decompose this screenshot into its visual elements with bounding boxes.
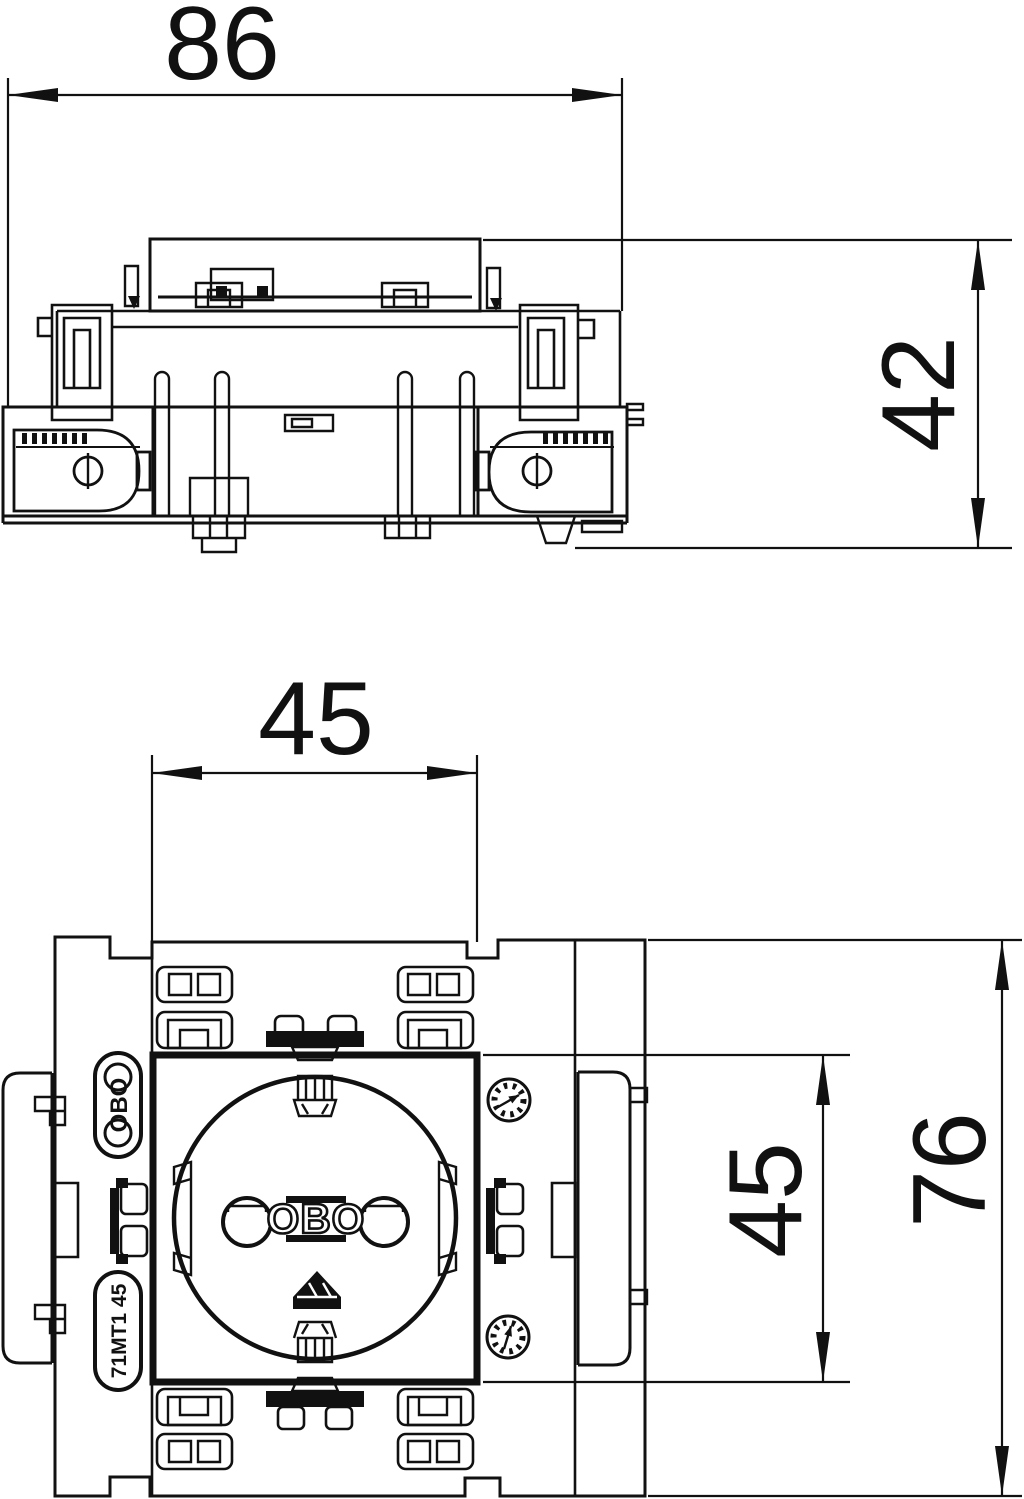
bottom-center-clamp: [266, 1378, 364, 1429]
earth-symbol-icon: [293, 1271, 341, 1309]
side-towers: [38, 305, 594, 420]
dimension-42: 42: [483, 240, 1012, 548]
lug-hatch-ticks: [22, 433, 608, 444]
lid-side-clips: [196, 283, 428, 307]
dim-45-width-label: 45: [258, 661, 374, 777]
dimension-45-height: 45: [483, 1055, 850, 1382]
slanted-foot: [537, 516, 575, 543]
wing-hooks: [35, 1097, 65, 1333]
dim-45-height-label: 45: [708, 1142, 824, 1258]
latch-right: [486, 1178, 523, 1264]
dimension-76: 76: [648, 940, 1022, 1496]
latch-bar: [110, 1178, 128, 1264]
dimension-45-width: 45: [152, 661, 477, 942]
model-badge-text: 71MT1 45: [108, 1283, 131, 1378]
clip: [398, 1434, 473, 1469]
top-view-side-elevation: [3, 239, 643, 552]
middle-band: [57, 311, 620, 407]
clip: [398, 967, 473, 1002]
clamp-lobe: [278, 1407, 304, 1429]
contact-hole-left: [223, 1198, 271, 1246]
latch-lobe: [497, 1226, 523, 1256]
logo-text: OBO: [267, 1195, 366, 1242]
clamp-lobe: [326, 1407, 352, 1429]
earth-hut: [293, 1271, 341, 1309]
dim-76-label: 76: [892, 1112, 1008, 1228]
lid-outline: [150, 239, 480, 311]
rail-feet: [193, 404, 643, 552]
brand-badge-text: OBO: [106, 1078, 133, 1133]
socket-center-logo: OBO: [267, 1195, 366, 1242]
terminal-block: [190, 415, 333, 516]
wing-panel: [578, 1072, 630, 1365]
front-view: OBO: [3, 937, 647, 1496]
contact-pins: [155, 372, 474, 516]
brand-badge: OBO: [95, 1053, 141, 1157]
adjust-screw-bottom-icon: [487, 1316, 529, 1358]
contact-hole-right: [360, 1198, 408, 1246]
latch-left: [110, 1178, 147, 1264]
clamp-bar: [266, 1391, 364, 1407]
latch-lobe: [497, 1184, 523, 1214]
hole-cap: [365, 1206, 403, 1212]
top-pins: [125, 266, 500, 308]
wing-right: [578, 1072, 647, 1365]
hole-cap: [228, 1206, 266, 1212]
dim-42-label: 42: [861, 336, 977, 452]
lug-screw-right-icon: [523, 453, 551, 489]
model-badge: 71MT1 45: [95, 1272, 141, 1390]
earth-clip-top: [294, 1076, 336, 1116]
socket-dimension-drawing: 86 42 OBO: [0, 0, 1024, 1499]
latch-lobe: [121, 1226, 147, 1256]
clamp-bar: [266, 1031, 364, 1047]
lug-screw-left-icon: [74, 453, 102, 489]
dim-86-label: 86: [164, 0, 280, 102]
mounting-rail: [3, 407, 627, 523]
technical-drawing-page: 86 42 OBO: [0, 0, 1024, 1499]
adjust-screw-top-icon: [488, 1079, 530, 1121]
latch-lobe: [121, 1184, 147, 1214]
extension-lines: [152, 755, 477, 942]
